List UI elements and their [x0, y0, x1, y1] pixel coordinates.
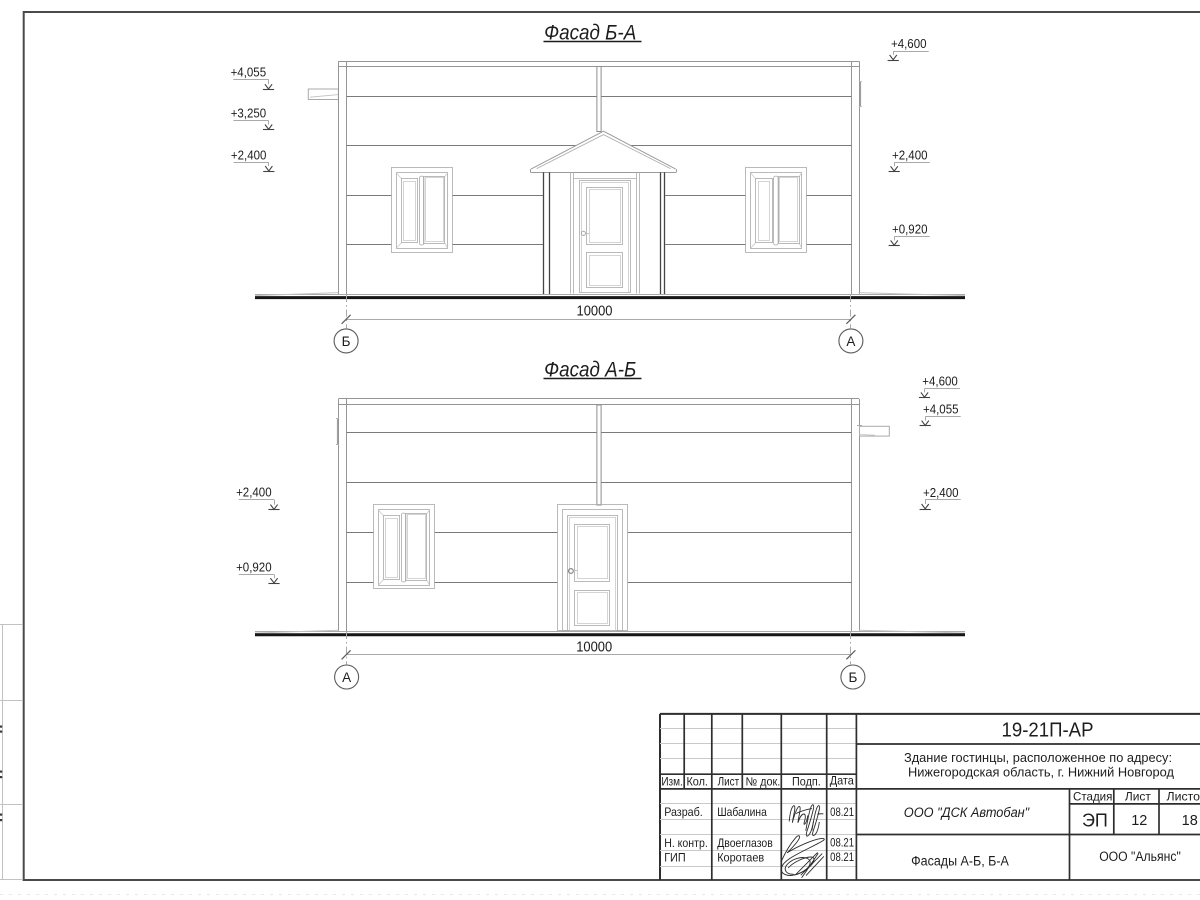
svg-text:Б: Б [342, 334, 351, 349]
svg-text:Лист: Лист [718, 774, 740, 788]
svg-text:Фасады А-Б, Б-А: Фасады А-Б, Б-А [911, 853, 1009, 868]
svg-text:+2,400: +2,400 [923, 485, 959, 500]
svg-text:10000: 10000 [576, 640, 612, 656]
svg-text:+4,600: +4,600 [891, 36, 927, 51]
svg-text:18: 18 [1182, 813, 1198, 829]
svg-text:10000: 10000 [577, 304, 613, 320]
svg-text:+4,055: +4,055 [231, 64, 267, 79]
svg-text:+0,920: +0,920 [892, 222, 928, 237]
svg-text:Изм.: Изм. [661, 774, 683, 788]
svg-text:+3,250: +3,250 [231, 106, 267, 121]
svg-text:+4,055: +4,055 [923, 401, 959, 416]
svg-text:ООО "Альянс": ООО "Альянс" [1099, 849, 1181, 864]
svg-text:А: А [342, 670, 351, 685]
svg-text:Листов: Листов [1167, 789, 1200, 803]
svg-text:Здание гостинцы, расположенное: Здание гостинцы, расположенное по адресу… [904, 750, 1172, 765]
svg-text:12: 12 [1131, 813, 1147, 829]
svg-text:+2,400: +2,400 [231, 148, 267, 163]
svg-text:Кол.: Кол. [686, 774, 708, 788]
svg-text:Разраб.: Разраб. [664, 805, 703, 819]
svg-text:08.21: 08.21 [830, 835, 854, 849]
svg-text:Лист: Лист [1125, 789, 1151, 803]
svg-text:19-21П-АР: 19-21П-АР [1002, 719, 1094, 742]
svg-text:Шабалина: Шабалина [717, 805, 767, 819]
svg-text:А: А [846, 334, 855, 349]
svg-text:Н. контр.: Н. контр. [664, 836, 708, 850]
svg-text:№ док.: № док. [745, 774, 780, 788]
svg-text:+0,920: +0,920 [236, 560, 272, 575]
svg-text:Нижегородская область, г. Нижн: Нижегородская область, г. Нижний Новгоро… [908, 765, 1174, 780]
svg-text:Коротаев: Коротаев [717, 850, 764, 864]
svg-text:ГИП: ГИП [664, 850, 685, 864]
svg-text:Двоеглазов: Двоеглазов [717, 836, 773, 850]
svg-text:+2,400: +2,400 [892, 147, 928, 162]
svg-text:+4,600: +4,600 [922, 374, 958, 389]
svg-text:ООО "ДСК Автобан": ООО "ДСК Автобан" [904, 805, 1031, 820]
svg-text:Дата: Дата [830, 773, 855, 787]
svg-text:ЭП: ЭП [1082, 811, 1108, 831]
svg-text:Стадия: Стадия [1073, 789, 1112, 803]
svg-text:08.21: 08.21 [830, 850, 854, 864]
svg-text:Подп.: Подп. [792, 774, 821, 788]
svg-text:Б: Б [848, 670, 857, 685]
svg-text:08.21: 08.21 [830, 805, 854, 819]
svg-text:+2,400: +2,400 [236, 485, 272, 500]
